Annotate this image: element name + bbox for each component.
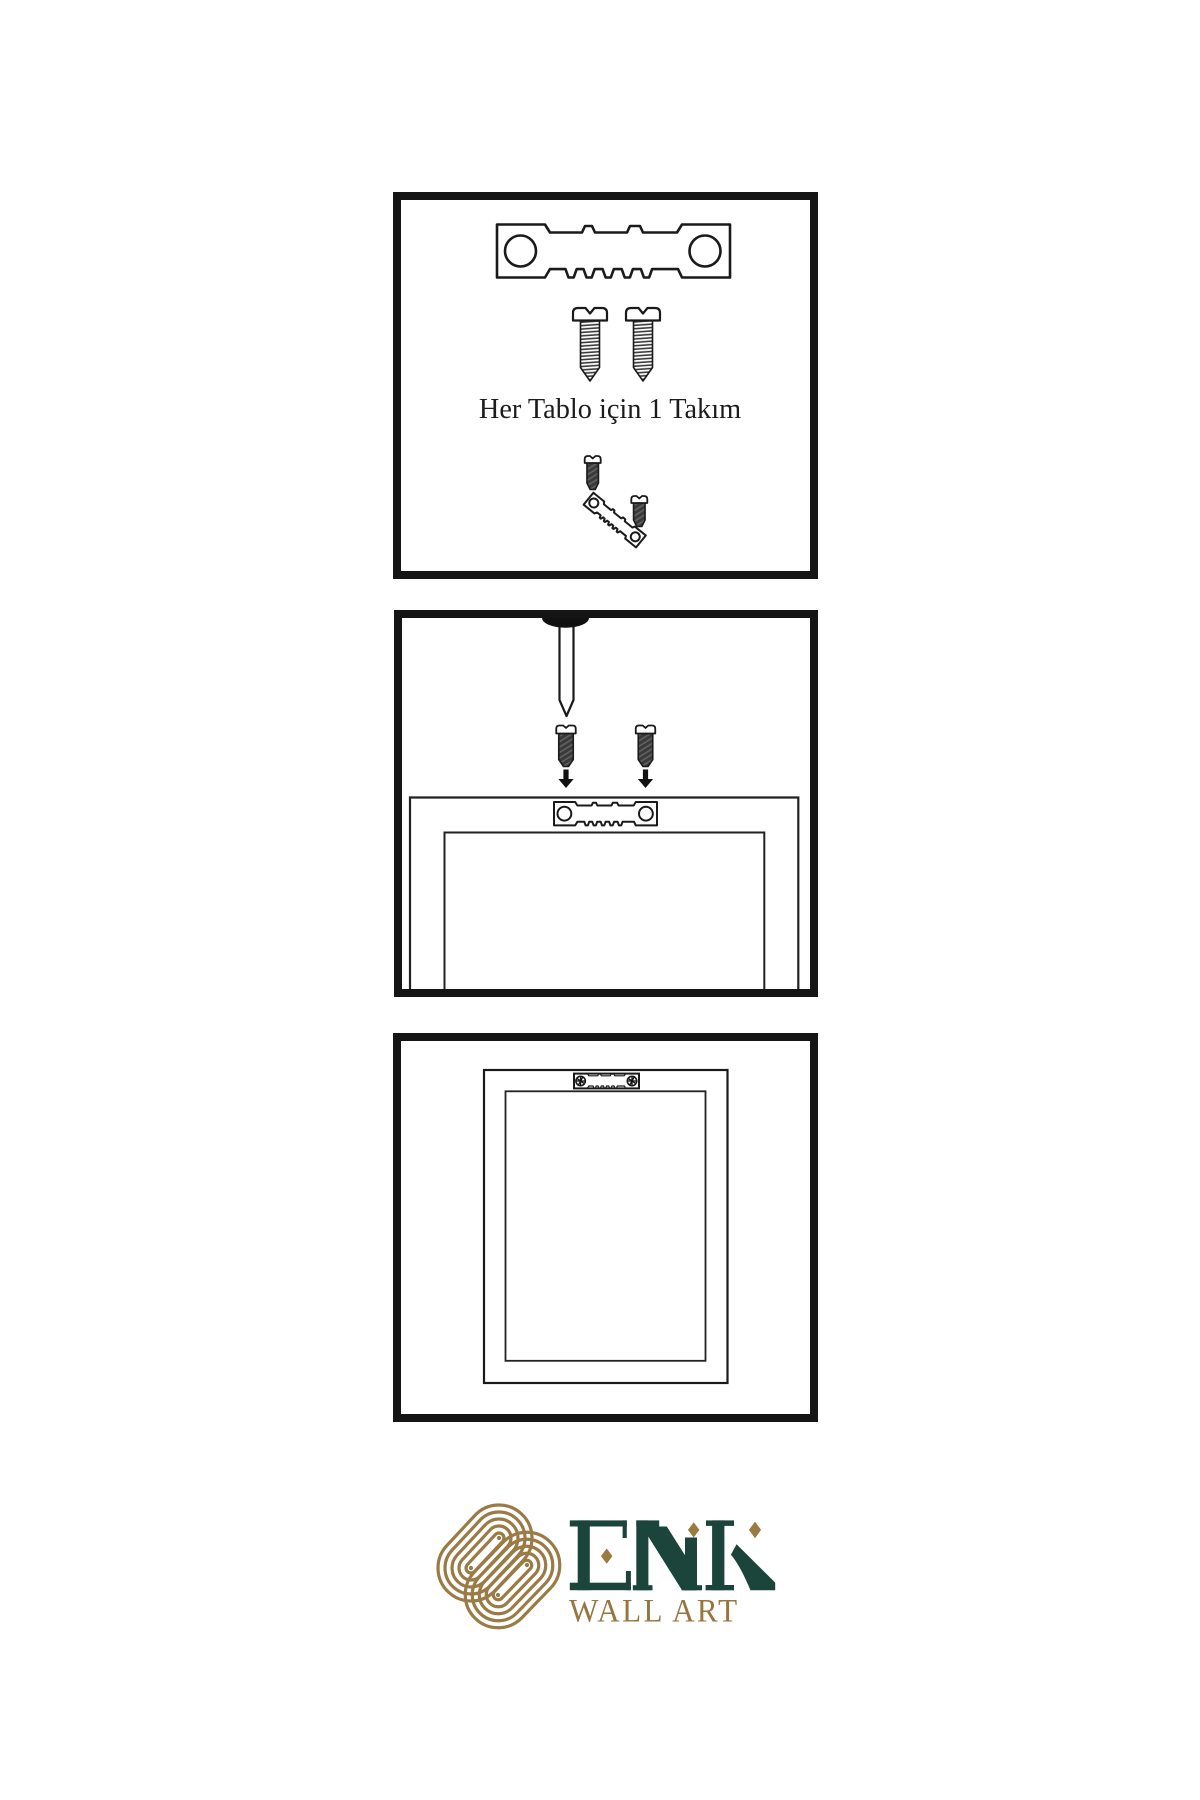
svg-text:Her Tablo için 1 Takım: Her Tablo için 1 Takım: [479, 394, 741, 425]
svg-text:WALL ART: WALL ART: [569, 1594, 740, 1630]
